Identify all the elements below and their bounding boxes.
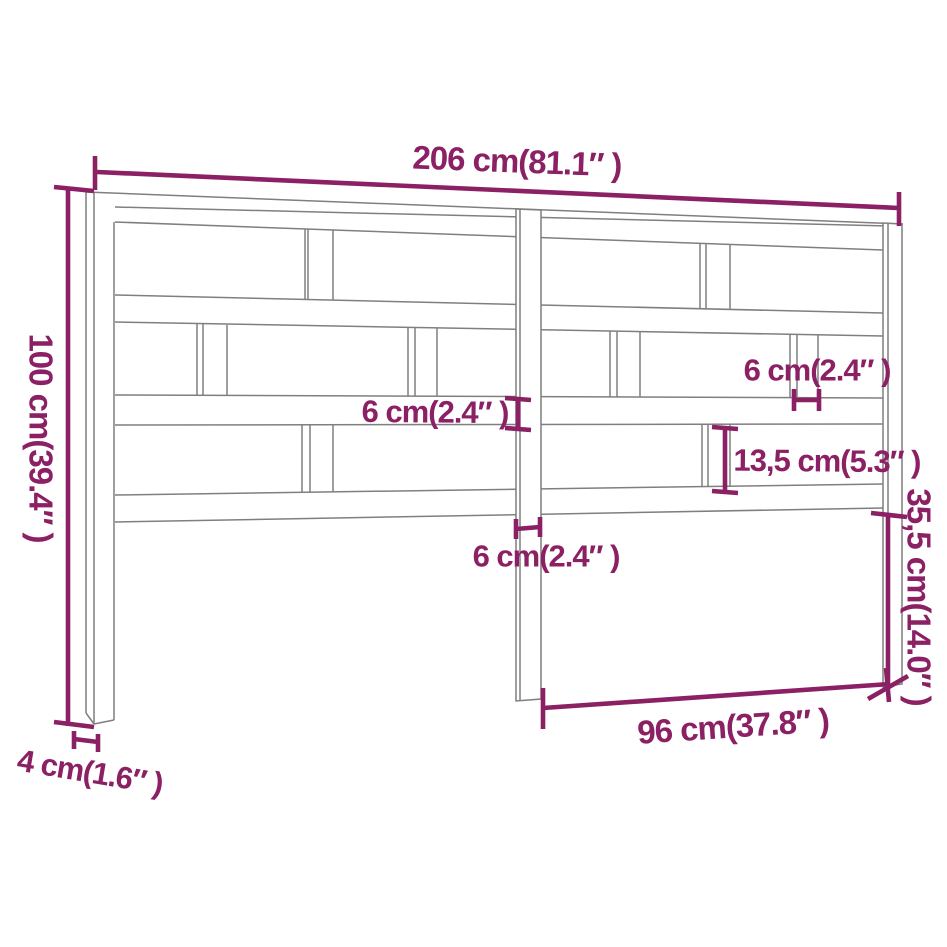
center-post: [516, 209, 541, 701]
rail4-top-edge: [115, 484, 883, 495]
rail4-bottom-edge: [115, 508, 883, 522]
dim-label-total-width: 206 cm(81.1″ ): [412, 140, 622, 181]
diagram-canvas: 206 cm(81.1″ ) 100 cm(39.4″ ) 35,5 cm(14…: [0, 0, 947, 947]
top-rail-bottom-edge: [115, 222, 883, 250]
dim-label-slat-row-height: 13,5 cm(5.3″ ): [733, 445, 920, 478]
dim-label-total-height: 100 cm(39.4″ ): [25, 333, 58, 542]
dim-label-slat-width: 6 cm(2.4″ ): [744, 355, 891, 386]
top-rail-face-edge: [115, 207, 888, 226]
dim-line-total-height: [54, 187, 94, 727]
rail2-bottom-edge: [115, 322, 883, 336]
dim-label-lower-right-height: 35,5 cm(14.0″ ): [903, 488, 936, 705]
dim-label-center-post-width: 6 cm(2.4″ ): [473, 541, 620, 572]
rail2-top-edge: [115, 295, 883, 313]
top-rail-top-edge: [86, 192, 903, 224]
slat-row-2: [197, 324, 818, 398]
dim-label-rail-thickness: 6 cm(2.4″ ): [361, 396, 508, 428]
left-post: [86, 192, 114, 724]
dim-line-leg-thickness: [74, 731, 98, 752]
